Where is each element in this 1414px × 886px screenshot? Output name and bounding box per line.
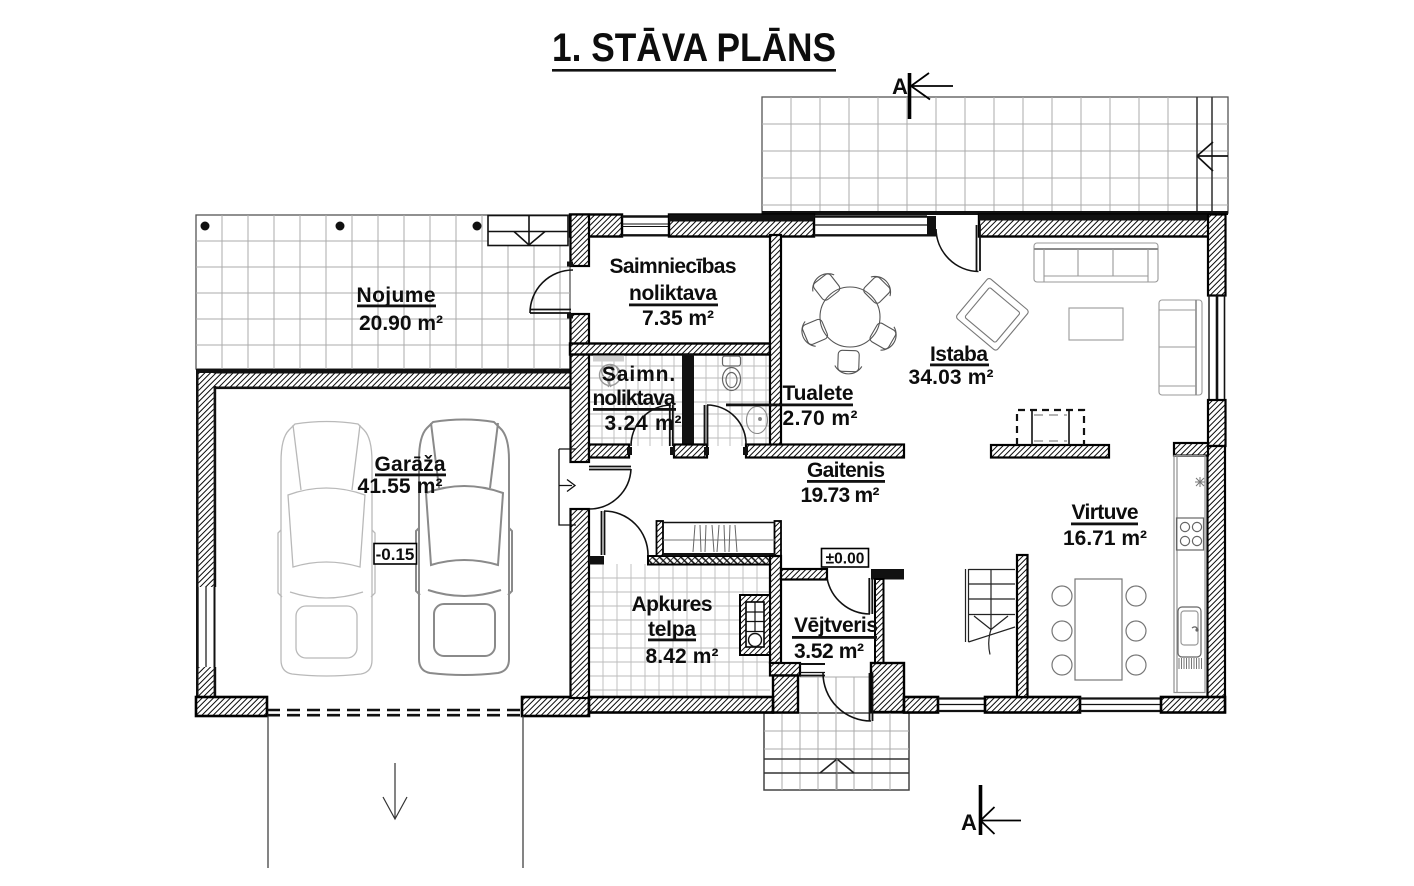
svg-text:7.35 m²: 7.35 m²: [642, 307, 714, 330]
svg-text:2.70 m²: 2.70 m²: [783, 407, 858, 430]
svg-text:noliktava: noliktava: [593, 387, 676, 410]
svg-text:-0.15: -0.15: [376, 545, 415, 564]
svg-text:8.42 m²: 8.42 m²: [646, 645, 719, 668]
svg-text:34.03 m²: 34.03 m²: [909, 366, 994, 389]
svg-text:16.71 m²: 16.71 m²: [1063, 527, 1147, 550]
svg-text:noliktava: noliktava: [629, 282, 717, 305]
svg-text:Saimniecības: Saimniecības: [610, 255, 737, 278]
svg-text:Nojume: Nojume: [357, 284, 436, 307]
svg-text:Garāža: Garāža: [375, 453, 446, 476]
svg-text:41.55 m²: 41.55 m²: [358, 475, 443, 498]
svg-text:A: A: [892, 74, 908, 99]
svg-text:Tualete: Tualete: [783, 382, 854, 405]
svg-text:±0.00: ±0.00: [826, 551, 865, 568]
svg-text:Gaitenis: Gaitenis: [807, 459, 885, 482]
svg-text:3.24 m²: 3.24 m²: [605, 412, 682, 435]
svg-text:A: A: [961, 810, 977, 835]
svg-text:3.52 m²: 3.52 m²: [794, 640, 864, 663]
svg-text:Saimn.: Saimn.: [602, 363, 676, 386]
svg-text:Virtuve: Virtuve: [1072, 501, 1139, 524]
svg-text:Apkures: Apkures: [632, 593, 713, 616]
svg-text:20.90 m²: 20.90 m²: [359, 312, 443, 335]
svg-text:telpa: telpa: [648, 618, 696, 641]
svg-text:1. STĀVA PLĀNS: 1. STĀVA PLĀNS: [552, 26, 836, 70]
svg-text:Vējtveris: Vējtveris: [794, 614, 878, 637]
svg-text:Istaba: Istaba: [930, 343, 988, 366]
svg-text:19.73 m²: 19.73 m²: [801, 484, 880, 507]
